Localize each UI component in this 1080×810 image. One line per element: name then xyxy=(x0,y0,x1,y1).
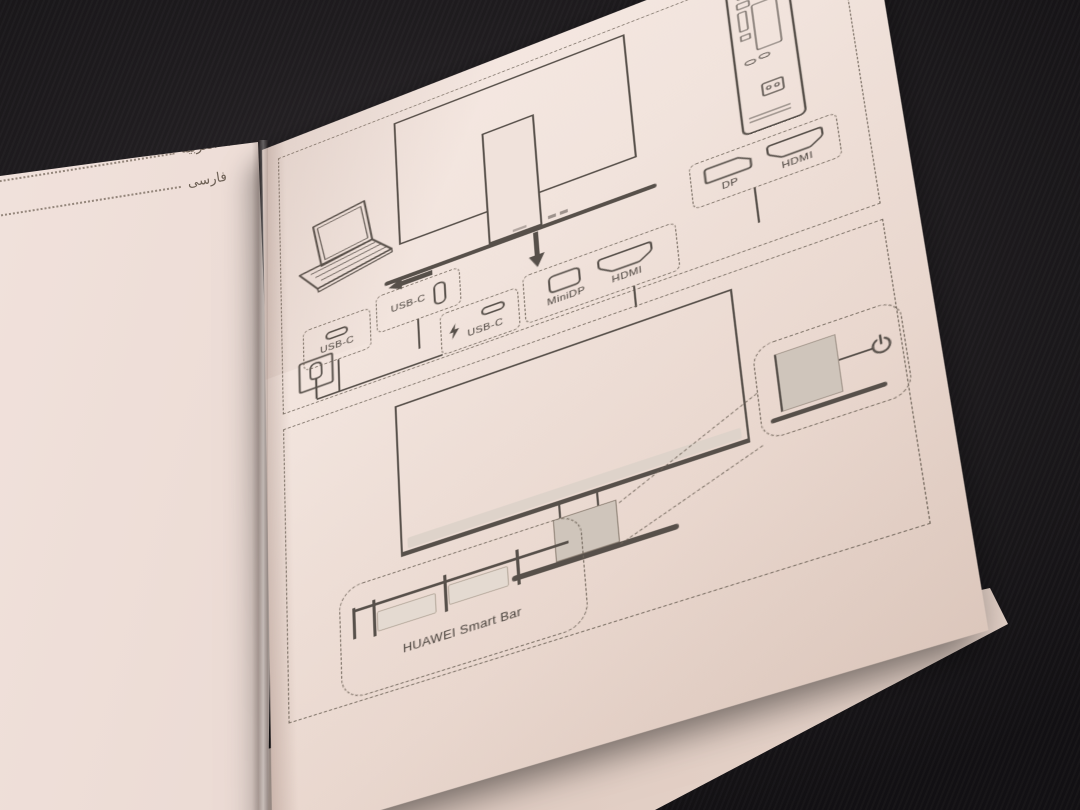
manual-photo-scene: اللغة العربية فارسی xyxy=(0,0,1080,810)
power-usbc-label: USB-C xyxy=(467,317,503,339)
cable-line xyxy=(754,187,761,223)
dp-port-group: DP xyxy=(703,151,756,198)
power-icon xyxy=(867,330,895,358)
power-key-callout xyxy=(752,298,914,442)
usbc-plug-icon xyxy=(433,280,447,306)
toc-label-farsi: فارسی xyxy=(186,169,228,191)
pc-tower-illustration xyxy=(718,0,820,143)
port-mark xyxy=(548,213,556,219)
port-mark xyxy=(513,225,527,232)
laptop-illustration xyxy=(282,189,394,321)
monitor-usbc-label: USB-C xyxy=(391,293,426,314)
cable-line xyxy=(338,359,341,391)
smartbar-end xyxy=(352,608,356,640)
cable-line xyxy=(417,319,421,349)
hdmi-port-group: HDMI xyxy=(764,124,827,176)
smartbar-tick xyxy=(515,549,520,585)
arrow-left-icon xyxy=(388,267,432,294)
usbc-port-icon xyxy=(481,300,505,317)
usbc-port-icon xyxy=(325,325,348,341)
port-mark xyxy=(560,209,568,215)
power-pointer-line xyxy=(839,348,873,361)
hdmi-port-group: HDMI xyxy=(596,238,656,290)
dotted-leader xyxy=(0,186,181,219)
minidp-port-group: MiniDP xyxy=(545,263,586,308)
arrow-down-icon xyxy=(527,229,546,270)
lightning-icon xyxy=(448,321,461,342)
power-usbc-callout: USB-C xyxy=(440,287,521,356)
smartbar-callout: HUAWEI Smart Bar xyxy=(339,511,590,702)
monitor-stand-column xyxy=(481,114,542,244)
laptop-usbc-label: USB-C xyxy=(320,335,354,356)
